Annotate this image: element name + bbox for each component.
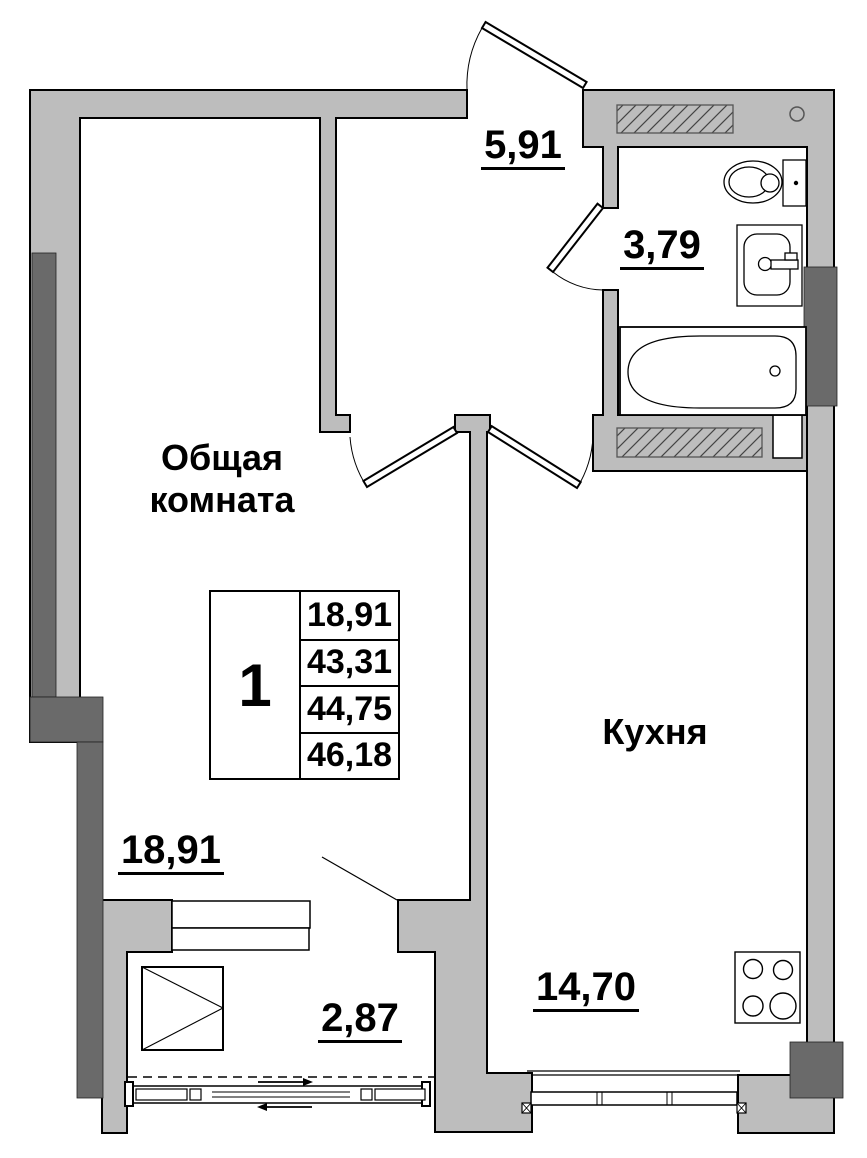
floor-plan-page: Общая комната Кухня 5,91 3,79 18,91 2,87…: [0, 0, 867, 1158]
kitchen-label: Кухня: [555, 711, 755, 753]
vent-shaft-hatch-bottom: [617, 428, 762, 457]
table-row: 43,31: [299, 639, 398, 686]
kitchen-area-value: 14,70: [533, 967, 639, 1012]
dark-pillar-right: [804, 267, 837, 406]
balcony-area-value: 2,87: [318, 998, 402, 1043]
wall-access-notch: [773, 415, 802, 458]
dark-strip-left-lower: [77, 742, 103, 1098]
hallway-area-label: 5,91: [461, 125, 585, 170]
bathtub-icon: [620, 327, 806, 415]
dark-pillar-bottom-right: [790, 1042, 843, 1098]
table-row: 46,18: [299, 732, 398, 779]
bathroom-door: [548, 204, 604, 290]
dark-strip-left-upper: [32, 253, 56, 697]
balcony-window-unit: [172, 901, 310, 950]
living-room-area-value: 18,91: [118, 830, 224, 875]
floor-plan-drawing: [0, 0, 867, 1158]
window-end-marker-left: [522, 1103, 531, 1113]
bathroom-area-value: 3,79: [620, 225, 704, 270]
living-room-label: Общая комната: [104, 437, 340, 521]
rooms-count-cell: 1: [211, 592, 299, 778]
sink-icon: [737, 225, 802, 306]
vent-shaft-hatch-top: [617, 105, 733, 133]
balcony-area-label: 2,87: [298, 998, 422, 1043]
kitchen-window: [522, 1071, 746, 1113]
toilet-icon: [724, 160, 806, 206]
vent-hole-icon: [790, 107, 804, 121]
window-end-marker-right: [737, 1103, 746, 1113]
dark-chunk-left: [30, 697, 103, 742]
table-row: 44,75: [299, 685, 398, 732]
kitchen-door: [488, 426, 593, 488]
balcony-glazing: [125, 1077, 434, 1111]
stove-icon: [735, 952, 800, 1023]
bathroom-fixtures: [620, 160, 806, 415]
table-row: 18,91: [299, 592, 398, 639]
balcony-door-leaf: [322, 857, 397, 900]
balcony-window-symbol: [142, 967, 223, 1050]
apartment-summary-table: 1 18,91 43,31 44,75 46,18: [209, 590, 400, 780]
kitchen-area-label: 14,70: [524, 967, 648, 1012]
entrance-door: [467, 22, 587, 90]
living-room-area-label: 18,91: [109, 830, 233, 875]
hallway-area-value: 5,91: [481, 125, 565, 170]
living-room-door: [350, 427, 457, 487]
bathroom-area-label: 3,79: [600, 225, 724, 270]
